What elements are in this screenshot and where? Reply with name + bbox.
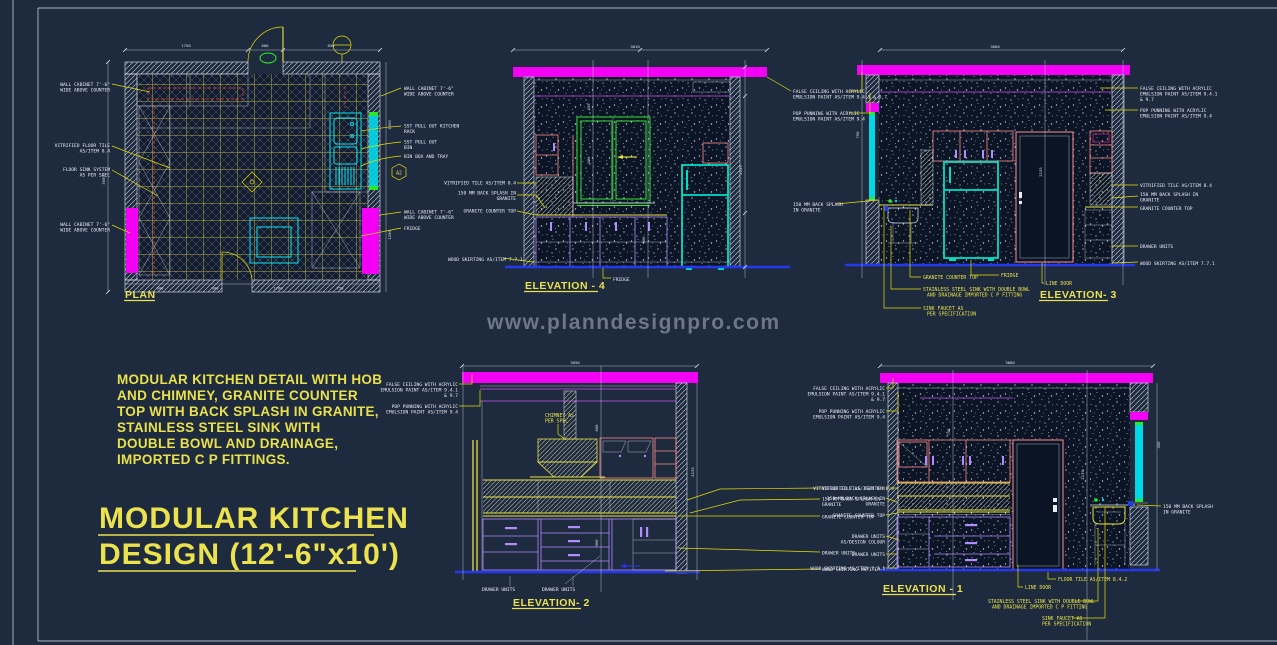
elev3-label: GRANITE COUNTER TOP [1140,206,1193,212]
elev3-label: EMULSION PAINT AS/ITEM 9.4 [793,117,865,123]
dim: 750 [946,428,951,436]
dim: 600 [156,286,164,291]
elev2-label: DRAWER UNITS [482,587,515,593]
elev1-backsplash [897,483,1010,510]
plan-wall-top-right [283,62,380,74]
elev2-label: EMULSION PAINT AS/ITEM 9.4 [386,410,458,416]
note-line: IMPORTED C P FITTINGS. [117,452,290,467]
dim: 3810 [630,44,640,49]
elev3-wall-right [1112,75,1124,265]
elev3-label: POP PUNNING WITH ACRYLIC [793,111,860,117]
elev3-label: AND DRAINAGE IMPORTED C P FITTING [927,293,1022,299]
elev1-label: & 9.7 [871,397,885,403]
elev2-label: CHIMNEY AS [545,413,574,419]
elev1-label: DRAWER UNITS [852,552,885,558]
elev1-title: ELEVATION - 1 [883,583,963,595]
elev4-granite-wall [534,77,730,267]
elev1-label: DRAWER UNITS [852,534,885,540]
elev1-label: GRANITE COUNTER TOP [832,513,885,519]
plan-wall-bottom-right [252,280,380,292]
elev1-labels-right: 150 MM BACK SPLASH IN GRANITE [1137,504,1213,516]
plan-label: WALL CABINET 7'-6" [404,210,454,216]
plan-label: FLOOR SINK SYSTEM [63,167,110,173]
elev1-labels-left: FALSE CEILING WITH ACRYLIC EMULSION PAIN… [808,378,899,572]
elev4-title: ELEVATION - 4 [525,280,605,292]
elev2-wall-right [676,383,687,573]
elev3-label: FALSE CEILING WITH ACRYLIC [793,89,865,95]
elev1-label: IN GRANITE [1163,510,1191,516]
elev1-label: POP PUNNING WITH ACRYLIC [819,409,886,415]
dim: 2135 [1080,470,1085,480]
elev3-label: FRIDGE [1001,273,1018,279]
dim: 2135 [738,165,743,175]
plan-section-marker [333,36,351,62]
elev2-upper-cabinets [600,438,676,478]
elev2-label: EMULSION PAINT AS/ITEM 9.4.1 [381,388,459,394]
elev1-label: FLOOR TILE AS/ITEM 8.4.2 [1058,577,1127,583]
plan-title: PLAN [125,289,156,301]
elev1-label: SINK FAUCET AS [1042,616,1083,622]
elev3-label: 150 MM BACK SPLASH [793,202,843,208]
elev2-label: DRAWER UNITS [822,551,855,557]
elev3-ceiling-beam [857,65,1130,75]
plan-label: VITRIFIED FLOOR TILE [55,143,111,149]
elev2-label: & 9.7 [444,393,458,399]
elev2-label: POP PUNNING WITH ACRYLIC [392,404,459,410]
elev3-label: WOOD SKIRTING AS/ITEM 7.7.1 [1140,261,1215,267]
elev2-chimney [530,391,605,477]
elev3-wall-left [866,75,879,265]
elev1-ceiling-beam [880,373,1153,383]
plan-marker-label: A2 [396,171,402,177]
elev2-backsplash [483,480,676,513]
elev3-label: IN GRANITE [793,208,821,214]
note-line: TOP WITH BACK SPLASH IN GRANITE, [117,404,379,419]
elev3-door [1016,132,1073,262]
elevation-3-view: 3660 750 2135 FALSE CEILING WITH ACRYLIC… [767,44,1218,318]
elev1-label: EMULSION PAINT AS/ITEM 9.4 [813,415,885,421]
elev2-label: DRAWER UNITS [542,587,575,593]
elev4-wall-left [524,77,534,267]
dim: 850 [327,43,335,48]
plan-view: A2 1750 600 850 600 900 1760 750 3050 10… [55,27,460,301]
plan-label: WALL CABINET 7'-6" [404,86,454,92]
elev3-label: VITRIFIED TILE AS/ITEM 8.4 [1140,183,1212,189]
plan-label: SST PULL OUT [404,140,437,146]
plan-window [369,112,378,190]
dim: 900 [594,539,599,547]
dim: 600 [586,156,591,164]
elev4-label: WOOD SKIRTING AS/ITEM 7.7.1 [448,257,523,263]
elev1-label: STAINLESS STEEL SINK WITH DOUBLE BOWL [988,599,1095,605]
plan-label: BIN BOX AND TRAY [404,154,448,160]
dim: 3050 [570,360,580,365]
elev1-wall-right [1130,383,1148,565]
elev4-label: GRANITE COUNTER TOP [463,209,516,215]
elev2-ceiling-beam [462,372,698,383]
plan-label: WIDE ABOVE COUNTER [404,215,454,221]
dim: 900 [211,286,219,291]
plan-tall-unit-left [126,208,138,273]
plan-tall-unit-right [362,208,379,274]
plan-label: WALL CABINET 7'-6" [60,222,110,228]
plan-label: FRIDGE [404,226,421,232]
elev3-label: STAINLESS STEEL SINK WITH DOUBLE BOWL [923,287,1030,293]
elev1-label: LINE DOOR [1025,585,1051,591]
elev3-label: SINK FAUCET AS [923,306,964,312]
dim: 750 [336,286,344,291]
plan-label: SST PULL OUT KITCHEN [404,124,460,130]
dim: 1760 [273,286,283,291]
dim: 2135 [690,467,695,477]
elev3-label: 150 MM BACK SPLASH IN [1140,192,1198,198]
note-line: AND CHIMNEY, GRANITE COUNTER [117,388,358,403]
elev2-label: PER SPEC [545,419,568,425]
dim: 1050 [387,120,392,130]
note-line: DOUBLE BOWL AND DRAINAGE, [117,436,338,451]
plan-label: WIDE ABOVE COUNTER [60,228,110,234]
plan-label: WIDE ABOVE COUNTER [404,92,454,98]
dim: 3660 [990,44,1000,49]
elev3-granite-wall [879,75,1112,265]
plan-label: AS/ITEM 8.4 [80,149,111,155]
elev3-label: PER SPECIFICATION [927,312,976,318]
plan-label: WIDE ABOVE COUNTER [60,88,110,94]
elev3-label: GRANITE [1140,198,1160,204]
elev2-label: FALSE CEILING WITH ACRYLIC [386,382,458,388]
watermark: www.planndesignpro.com [486,311,781,334]
elev4-label: FRIDGE [613,277,630,283]
elev3-label: DRAWER UNITS [1140,244,1173,250]
elev3-label: POP PUNNING WITH ACRYLIC [1140,108,1207,114]
plan-label: RACK [404,129,415,135]
dim: 1750 [181,43,191,48]
elev1-label: WOOD SKIRTING AS/ITEM 7.7.1 [810,566,885,572]
sheet-title-line-2: DESIGN (12'-6"x10') [99,538,400,571]
dim: 2135 [1038,167,1043,177]
dim: 750 [855,131,860,139]
kitchen-cad-sheet: A2 1750 600 850 600 900 1760 750 3050 10… [0,0,1277,645]
cad-drawing-canvas: A2 1750 600 850 600 900 1760 750 3050 10… [0,0,1277,645]
elev1-label: PER SPECIFICATION [1042,622,1091,628]
elev3-label: LINE DOOR [1046,281,1072,287]
elev1-door [1013,440,1063,570]
plan-label: BIN [404,145,413,151]
dim: 600 [261,43,269,48]
elev4-ceiling-beam [513,67,767,77]
dim: 3660 [1005,360,1015,365]
plan-elevation-marker: A2 [392,164,406,180]
elev3-label: EMULSION PAINT AS/ITEM 9.4.1 & 9.7 [793,95,887,101]
elev3-label: FALSE CEILING WITH ACRYLIC [1140,86,1212,92]
plan-label: WALL CABINET 7'-6" [60,82,110,88]
elevation-4-view: 3810 450 600 900 2135 VITRIFIED TILE AS/… [444,44,790,292]
elev2-label: GRANITE [822,502,842,508]
description-note: MODULAR KITCHEN DETAIL WITH HOB AND CHIM… [117,372,382,467]
elev4-label: GRANITE [497,196,517,202]
plan-label: AS PER SPEC [80,173,111,179]
elev3-label: & 9.7 [1140,97,1154,103]
dim: 600 [594,424,599,432]
elev4-label: 150 MM BACK SPLASH IN [458,191,516,197]
elev2-tall-unit-left [473,440,477,572]
elev3-label: EMULSION PAINT AS/ITEM 9.4.1 [1140,92,1218,98]
elev3-title: ELEVATION- 3 [1040,289,1117,301]
note-line: MODULAR KITCHEN DETAIL WITH HOB [117,372,382,387]
sheet-title-line-1: MODULAR KITCHEN [99,502,409,535]
sheet-title: MODULAR KITCHEN DESIGN (12'-6"x10') [98,502,409,571]
elev2-base-cabinets [483,516,676,570]
plan-wall-top-left [125,62,248,74]
elev1-label: FALSE CEILING WITH ACRYLIC [813,386,885,392]
dim: 900 [641,236,646,244]
elev1-label: VITRIFIED TILE AS/ITEM 8.4 [813,486,885,492]
elevation-1-view: 3660 750 2135 450 FALSE CEILING WITH ACR… [808,360,1213,640]
elev1-label: 150 MM BACK SPLASH [1163,504,1213,510]
dim: 450 [1156,441,1161,449]
elev1-label: AS/DESIGN COLOUR [841,540,885,546]
dim: 1200 [387,230,392,240]
note-line: STAINLESS STEEL SINK WITH [117,420,321,435]
elev1-label: EMULSION PAINT AS/ITEM 9.4.1 [808,392,886,398]
elev4-label: VITRIFIED TILE AS/ITEM 8.4 [444,181,516,187]
elev1-label: 150 MM BACK SPLASH IN [827,496,885,502]
elev1-label: GRANITE [866,502,886,508]
elev3-label: GRANITE COUNTER TOP [923,275,978,281]
elev2-title: ELEVATION- 2 [513,597,590,609]
plan-door-tag [260,53,276,63]
elev3-label: EMULSION PAINT AS/ITEM 9.4 [1140,114,1212,120]
dim: 450 [586,103,591,111]
elev1-label: AND DRAINAGE IMPORTED C P FITTING [992,605,1087,611]
